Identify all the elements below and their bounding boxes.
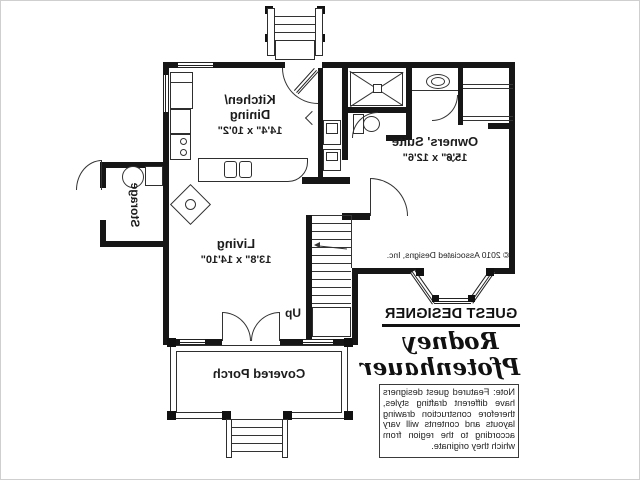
under-stair-closet: [312, 307, 351, 337]
wall-segment: [100, 241, 163, 247]
stove-burner: [180, 149, 187, 156]
kitchen-peninsula-counter: [198, 158, 308, 182]
kitchen-dims: 14'4" x 10'2": [218, 125, 283, 137]
french-door-right: [222, 312, 251, 341]
stoop-tread: [275, 32, 315, 33]
stair-tread: [312, 287, 351, 288]
closet-shelf: [463, 88, 513, 89]
bay-window-post: [432, 295, 439, 302]
bay-window-post: [416, 268, 424, 276]
wall-segment: [488, 123, 515, 129]
stair-tread: [312, 231, 351, 232]
stoop-landing: [275, 40, 315, 60]
storage-cabinet: [145, 166, 163, 186]
kitchen-counter: [170, 109, 191, 134]
washer-inner: [326, 123, 338, 134]
owner-suite-door-arc: [370, 178, 408, 216]
heading-underline: [382, 324, 520, 327]
dryer-inner: [326, 152, 338, 161]
stoop-rail: [267, 8, 275, 56]
stair-tread: [312, 303, 351, 304]
designer-name-last: Pfotenhauer: [382, 355, 520, 381]
step-tread: [232, 451, 282, 452]
floor-plan-canvas: Kitchen/ Dining 14'4" x 10'2" Owners' Su…: [0, 0, 640, 480]
stoop-tread: [275, 24, 315, 25]
stair-up-label: Up: [280, 306, 306, 321]
room-label-owners-suite: Owners' Suite 15'6" x 12'6": [365, 134, 505, 166]
stair-arrow-icon: [314, 242, 320, 248]
wall-segment: [100, 220, 106, 247]
room-label-covered-porch: Covered Porch: [208, 366, 310, 381]
stair-tread: [312, 271, 351, 272]
porch-outline-inner: [176, 351, 342, 413]
vanity-door-arc: [432, 95, 458, 121]
step-tread: [232, 443, 282, 444]
stair-tread: [312, 215, 351, 216]
stove-burner: [180, 138, 187, 145]
french-door-left: [251, 312, 280, 341]
floor-plan-page: { "plan": { "rooms": [ {"line1": "Kitche…: [0, 0, 640, 480]
room-label-living: Living 13'8" x 14'10": [176, 236, 296, 268]
stair-tread: [312, 295, 351, 296]
wall-segment: [163, 62, 169, 75]
storage-door-arc: [76, 160, 102, 190]
stair-tread: [312, 223, 351, 224]
stair-tread: [312, 263, 351, 264]
kitchen-name-line1: Kitchen/: [224, 92, 275, 107]
designer-name-first: Rodney: [382, 329, 520, 355]
porch-step-opening: [228, 410, 286, 422]
designer-note: Note: Featured guest designers have diff…: [379, 384, 519, 458]
porch-post: [167, 338, 176, 347]
island-sink: [185, 199, 196, 210]
wall-segment: [406, 68, 412, 140]
copyright-text: © 2010 Associated Designs, Inc.: [384, 250, 512, 260]
wall-segment: [509, 62, 515, 274]
vanity-sink-inner: [431, 77, 445, 86]
window: [178, 62, 213, 68]
stoop-rail: [315, 8, 323, 56]
stair-edge: [351, 215, 352, 268]
owners-suite-dims: 15'6" x 12'6": [403, 152, 468, 164]
closet-shelf: [463, 84, 513, 85]
shower-drain: [373, 84, 382, 93]
wall-segment: [163, 112, 169, 345]
wall-segment: [352, 268, 358, 345]
step-tread: [232, 435, 282, 436]
closet-shelf: [463, 116, 513, 117]
stair-tread: [312, 279, 351, 280]
wall-segment: [342, 68, 348, 160]
porch-post: [344, 411, 353, 420]
kitchen-name-line2: Dining: [230, 107, 270, 122]
wall-segment: [322, 62, 515, 68]
vanity-counter: [412, 90, 458, 91]
kitchen-sink-basin: [224, 161, 237, 178]
stoop-tread: [275, 16, 315, 17]
guest-designer-block: GUEST DESIGNER Rodney Pfotenhauer Note: …: [382, 304, 520, 460]
bay-window-post: [486, 268, 494, 276]
owners-suite-name: Owners' Suite: [392, 134, 478, 149]
wall-segment: [302, 177, 350, 184]
refrigerator-line: [171, 82, 192, 83]
window: [163, 75, 169, 112]
bay-window-post: [468, 295, 475, 302]
room-label-storage: Storage: [127, 170, 143, 240]
step-tread: [232, 427, 282, 428]
step-rail: [282, 419, 288, 458]
porch-post: [167, 411, 176, 420]
stair-tread: [312, 239, 351, 240]
stair-tread: [312, 255, 351, 256]
kitchen-sink-basin: [239, 161, 252, 178]
living-dims: 13'8" x 14'10": [201, 254, 272, 266]
room-label-kitchen: Kitchen/ Dining 14'4" x 10'2": [190, 92, 310, 139]
wall-segment: [213, 62, 285, 68]
step-rail: [226, 419, 232, 458]
porch-post: [344, 338, 353, 347]
living-name: Living: [217, 236, 255, 251]
guest-designer-heading: GUEST DESIGNER: [382, 306, 520, 322]
closet-shelf: [463, 120, 513, 121]
step-tread: [232, 419, 282, 420]
